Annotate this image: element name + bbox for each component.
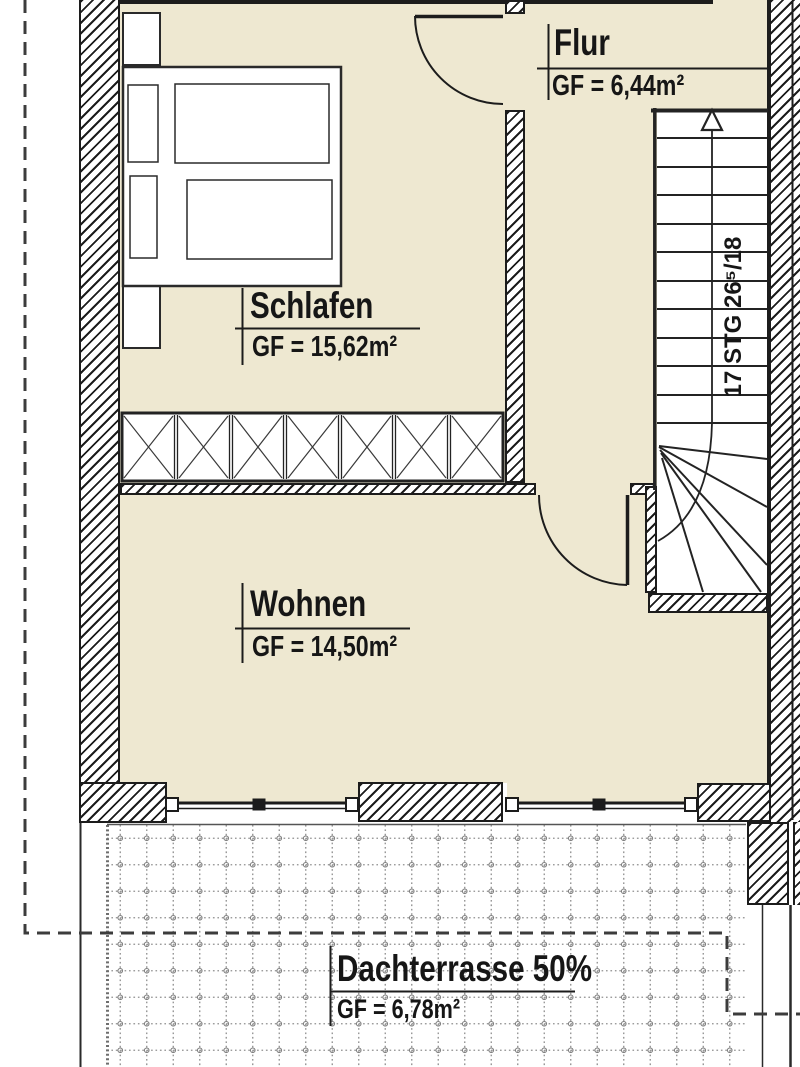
pillow-2 bbox=[130, 176, 157, 258]
wardrobe bbox=[122, 413, 503, 481]
floorplan-overlay bbox=[0, 0, 800, 1067]
pillow-1 bbox=[128, 85, 158, 162]
room-area-flur: GF = 6,44m² bbox=[552, 72, 684, 101]
stair-label: 17 STG 26⁵/18 bbox=[720, 237, 748, 398]
door-schlafen bbox=[415, 16, 503, 104]
room-area-dachterrasse: GF = 6,78m² bbox=[337, 996, 460, 1023]
nightstand-top bbox=[123, 13, 160, 65]
staircase bbox=[651, 108, 768, 593]
window-post bbox=[166, 798, 178, 811]
room-label-flur: Flur bbox=[554, 24, 610, 61]
room-label-wohnen: Wohnen bbox=[250, 585, 366, 622]
floor-plan: Schlafen GF = 15,62m² Flur GF = 6,44m² W… bbox=[0, 0, 800, 1067]
room-area-schlafen: GF = 15,62m² bbox=[252, 333, 397, 362]
window-post bbox=[685, 798, 697, 811]
room-label-dachterrasse: Dachterrasse 50% bbox=[337, 950, 592, 987]
room-label-schlafen: Schlafen bbox=[250, 287, 373, 324]
door-swing-wohnen bbox=[539, 495, 627, 585]
top-wall-faces bbox=[120, 0, 713, 4]
room-area-wohnen: GF = 14,50m² bbox=[252, 633, 397, 662]
terrace-tile-grid bbox=[107, 825, 746, 1067]
window-mullion bbox=[253, 799, 265, 810]
nightstand-bottom bbox=[123, 286, 160, 348]
window-mullion bbox=[593, 799, 605, 810]
mattress-1 bbox=[175, 84, 329, 163]
door-swing-schlafen bbox=[415, 16, 503, 104]
door-wohnen bbox=[539, 495, 628, 585]
terrace bbox=[81, 823, 791, 1067]
window-post bbox=[506, 798, 518, 811]
floor-fill-window-bays bbox=[167, 783, 697, 804]
mattress-2 bbox=[187, 180, 332, 259]
window-post bbox=[346, 798, 358, 811]
